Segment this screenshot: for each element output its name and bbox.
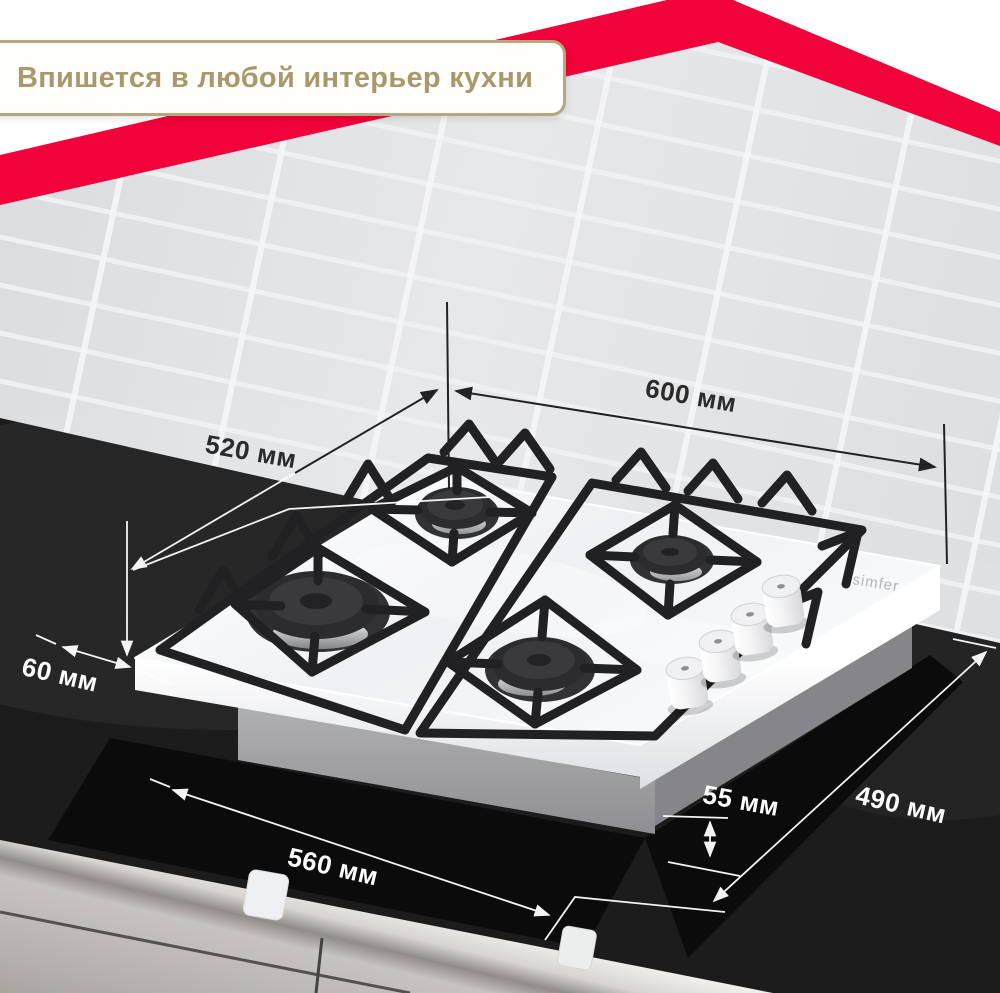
- headline-banner: Впишется в любой интерьер кухни: [0, 40, 566, 116]
- headline-text: Впишется в любой интерьер кухни: [17, 62, 533, 95]
- support-foot: [242, 869, 289, 921]
- cooktop-illustration: simfer: [0, 0, 1000, 993]
- extension-line-right: [944, 424, 947, 564]
- product-scene: simfer: [0, 0, 1000, 993]
- support-foot: [557, 925, 597, 970]
